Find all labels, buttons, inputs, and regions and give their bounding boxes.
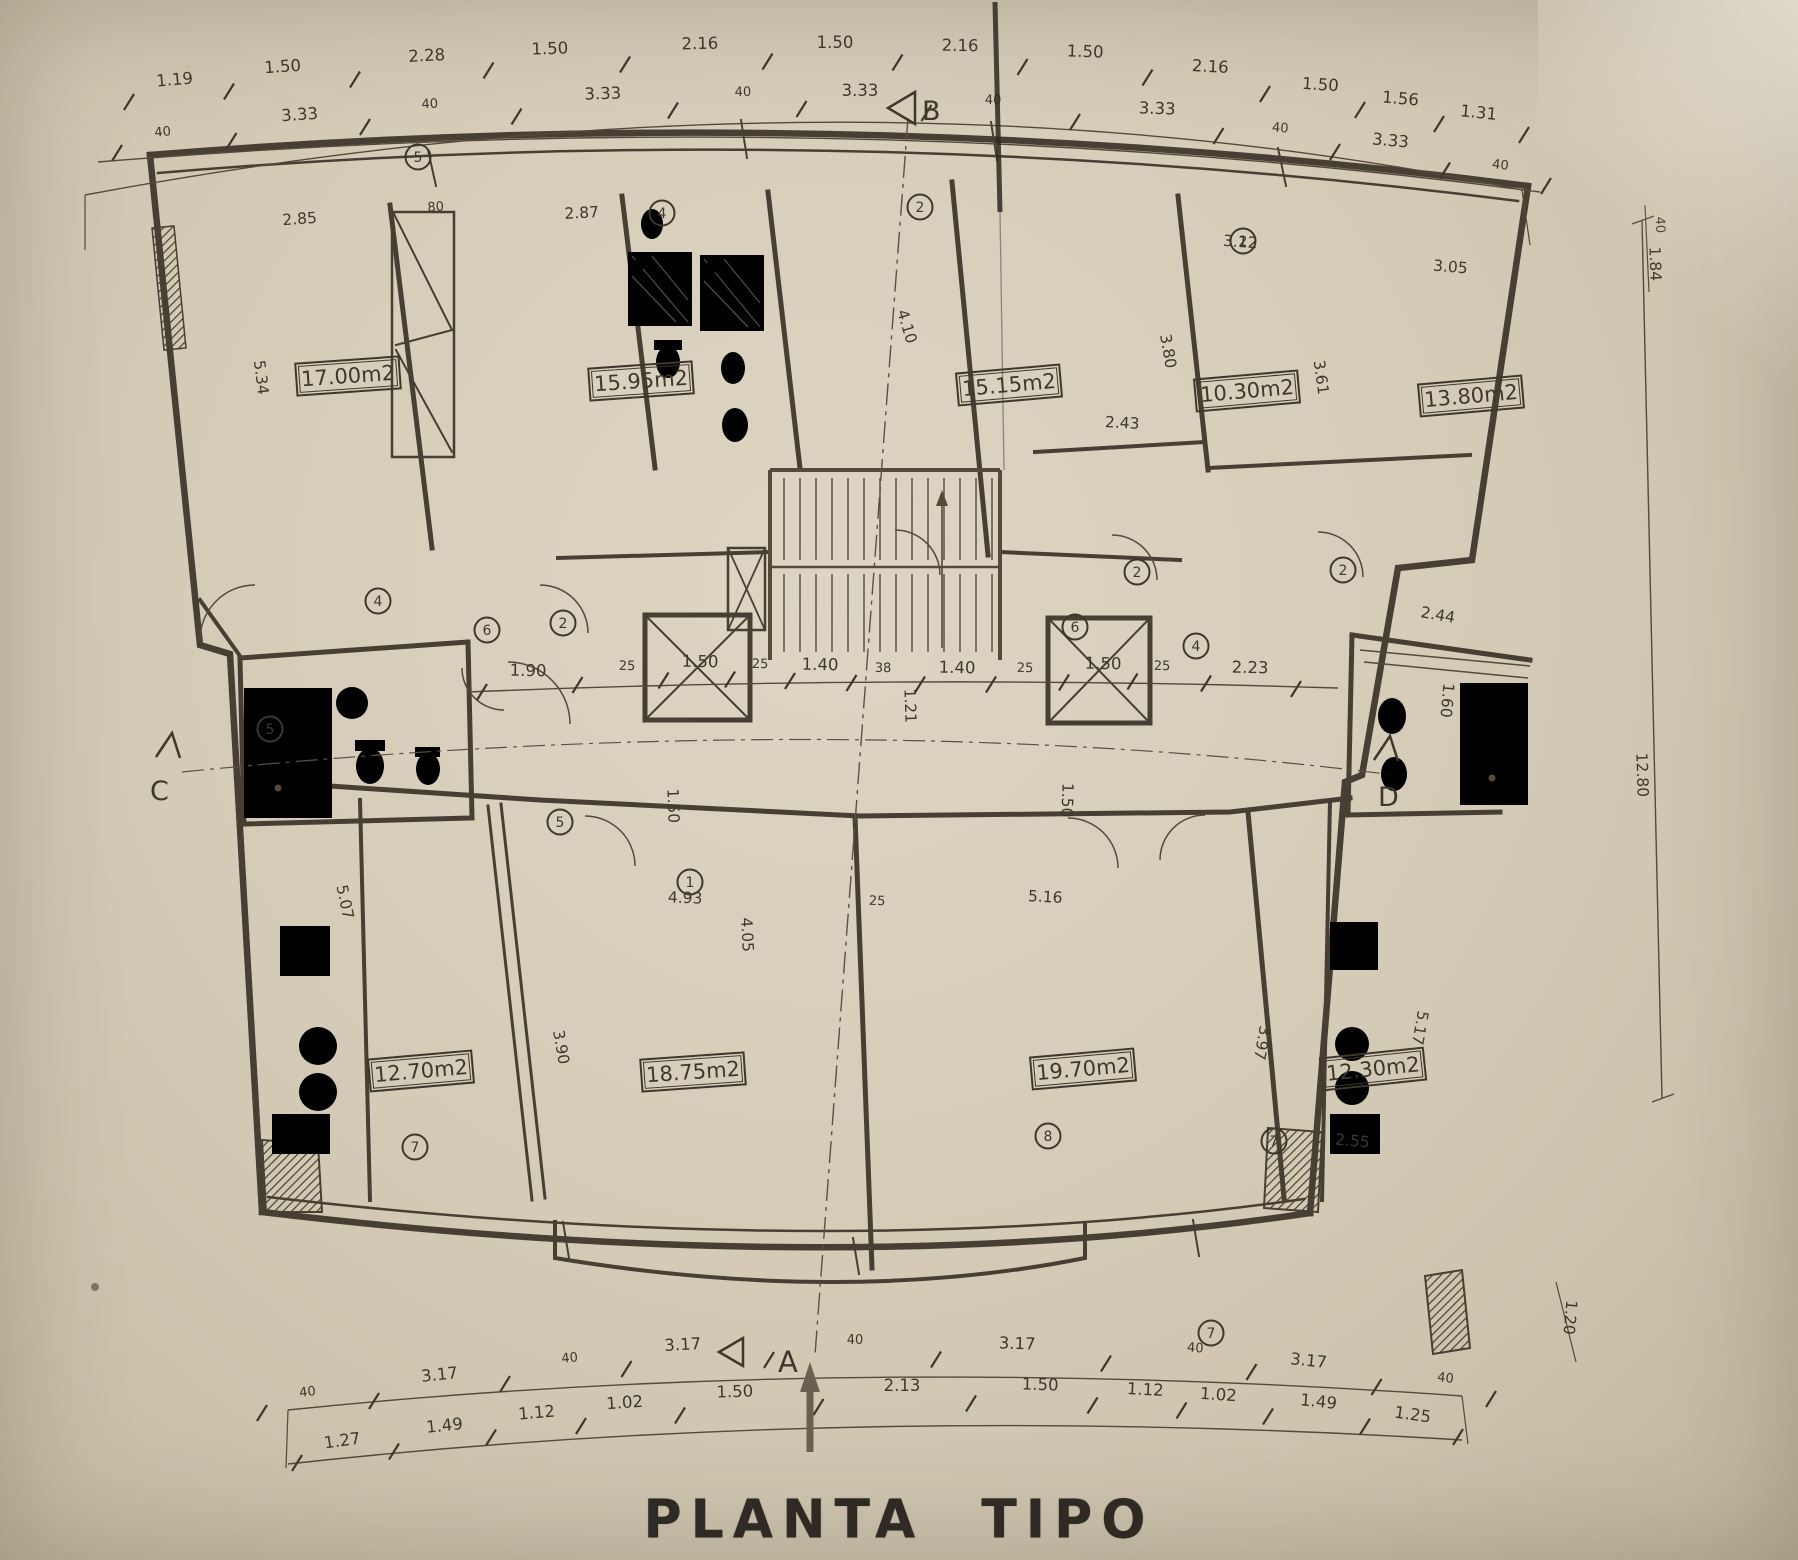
dimension-label: 1.40 — [939, 658, 976, 678]
svg-text:4: 4 — [374, 594, 383, 610]
dimension-label: 2.16 — [942, 36, 979, 56]
dimension-label: 2.44 — [1419, 603, 1456, 627]
room-area-label: 17.00m2 — [295, 356, 400, 395]
dimension-label: 40 — [154, 124, 172, 140]
dimension-label: 25 — [619, 659, 636, 674]
svg-text:8: 8 — [1044, 1129, 1053, 1145]
dimension-label: 1.02 — [606, 1392, 644, 1414]
dimension-label: 2.16 — [681, 34, 718, 54]
svg-text:2: 2 — [916, 200, 925, 216]
room-number-tag: 2 — [908, 195, 933, 220]
section-marker-b: B — [922, 96, 941, 127]
dimension-label: 1.40 — [802, 655, 839, 675]
svg-text:5: 5 — [266, 722, 275, 738]
svg-text:10.30m2: 10.30m2 — [1199, 375, 1295, 407]
svg-text:5: 5 — [414, 150, 423, 166]
dimension-label: 1.12 — [1126, 1379, 1164, 1400]
dimension-label: 40 — [421, 97, 438, 113]
svg-text:7: 7 — [1270, 1134, 1279, 1150]
dimension-label: 5.16 — [1028, 887, 1063, 907]
dimension-label: 1.27 — [323, 1429, 362, 1453]
dimension-label: 1.50 — [1301, 74, 1339, 96]
dimension-label: 2.43 — [1105, 413, 1140, 433]
dimension-label: 3.33 — [842, 81, 879, 100]
fixtures — [200, 209, 1530, 1154]
dimension-label: 1.50 — [531, 38, 568, 58]
dimension-label: 1.12 — [517, 1401, 555, 1423]
room-area-labels: 17.00m215.95m215.15m210.30m213.80m212.70… — [295, 356, 1524, 1091]
dimension-label: 1.49 — [1299, 1390, 1338, 1413]
svg-text:2: 2 — [1133, 565, 1142, 581]
dimension-label: 1.21 — [900, 688, 919, 723]
svg-text:6: 6 — [1071, 620, 1080, 636]
dimension-label: 1.31 — [1459, 101, 1498, 124]
room-number-tag: 2 — [1125, 560, 1150, 585]
dimension-label: 3.33 — [584, 83, 621, 103]
room-number-tag: 8 — [1036, 1124, 1061, 1149]
svg-text:19.70m2: 19.70m2 — [1035, 1053, 1131, 1085]
dimension-label: 12.80 — [1632, 752, 1652, 797]
room-number-tag: 2 — [1331, 558, 1356, 583]
dimension-label: 25 — [1017, 661, 1034, 676]
dimension-label: 40 — [847, 1333, 864, 1348]
dimension-label: 1.50 — [663, 788, 682, 823]
room-number-tag: 4 — [366, 589, 391, 614]
dimension-label: 1.90 — [510, 661, 547, 681]
dimension-label: 2.85 — [282, 209, 318, 229]
dimension-label: 3.80 — [1156, 333, 1180, 370]
dimension-label: 3.17 — [664, 1334, 702, 1355]
svg-text:4: 4 — [658, 206, 667, 222]
room-number-tag: 6 — [475, 618, 500, 643]
dimension-label: 1.56 — [1381, 87, 1419, 109]
dimension-label: 5.34 — [250, 359, 272, 395]
scanned-paper: 1.191.502.281.502.161.502.161.502.161.50… — [0, 0, 1798, 1560]
dimension-labels: 1.191.502.281.502.161.502.161.502.161.50… — [112, 33, 1667, 1471]
room-area-label: 13.80m2 — [1418, 376, 1524, 417]
svg-text:4: 4 — [1192, 639, 1201, 655]
room-number-tag: 7 — [1199, 1321, 1224, 1346]
dimension-label: 1.50 — [264, 56, 302, 78]
dimension-label: 2.16 — [1191, 56, 1229, 77]
svg-text:5: 5 — [556, 815, 565, 831]
dimension-label: 3.33 — [281, 104, 319, 126]
dimension-label: 3.17 — [420, 1363, 459, 1386]
room-area-label: 12.70m2 — [368, 1051, 474, 1092]
svg-text:6: 6 — [483, 623, 492, 639]
svg-text:12.70m2: 12.70m2 — [373, 1055, 469, 1087]
dimension-label: 1.50 — [1057, 783, 1076, 818]
dimension-label: 1.20 — [1560, 1299, 1581, 1335]
dimension-label: 40 — [1491, 157, 1509, 174]
dimension-label: 1.50 — [716, 1381, 753, 1401]
dimension-label: 25 — [869, 894, 886, 910]
dimension-label: 40 — [1652, 216, 1668, 233]
section-marker-d: D — [1378, 782, 1399, 813]
dimension-label: 3.05 — [1432, 257, 1468, 278]
dimension-label: 40 — [1436, 1370, 1454, 1387]
svg-text:15.15m2: 15.15m2 — [961, 369, 1057, 401]
dimension-label: 1.49 — [425, 1414, 464, 1437]
dimension-label: 1.50 — [817, 33, 854, 52]
dimension-label: 1.50 — [1085, 654, 1122, 674]
room-number-tag: 4 — [1184, 634, 1209, 659]
dimension-label: 40 — [735, 85, 752, 100]
dimension-label: 3.17 — [998, 1333, 1035, 1353]
svg-text:7: 7 — [1207, 1326, 1216, 1342]
dimension-label: 1.02 — [1199, 1384, 1237, 1406]
dimension-label: 2.28 — [408, 45, 446, 66]
dimension-label: 1.84 — [1645, 246, 1664, 281]
room-area-label: 18.75m2 — [640, 1052, 745, 1091]
svg-text:1: 1 — [686, 875, 695, 891]
dimension-label: 1.60 — [1437, 682, 1458, 718]
dimension-label: 2.87 — [564, 203, 599, 223]
floor-plan-drawing: 1.191.502.281.502.161.502.161.502.161.50… — [0, 0, 1798, 1560]
svg-text:2: 2 — [1239, 234, 1248, 250]
dimension-label: 5.07 — [332, 883, 357, 921]
staircase — [770, 470, 1000, 660]
dimension-label: 5.17 — [1408, 1009, 1432, 1046]
room-number-tag: 7 — [403, 1135, 428, 1160]
dimension-label: 1.25 — [1393, 1403, 1432, 1427]
dimension-label: 3.61 — [1310, 359, 1333, 396]
dimension-label: 3.90 — [549, 1029, 573, 1066]
dimension-label: 2.13 — [884, 1376, 921, 1395]
dimension-label: 4.10 — [893, 307, 920, 345]
svg-text:2: 2 — [559, 616, 568, 632]
room-area-label: 12.30m2 — [1320, 1048, 1426, 1091]
room-number-tag: 1 — [678, 870, 703, 895]
dimension-label: 3.33 — [1371, 129, 1409, 151]
section-lines — [182, 118, 1386, 1355]
section-marker-a: A — [778, 1345, 798, 1379]
dimension-label: 3.33 — [1138, 98, 1175, 118]
dimension-label: 40 — [1186, 1340, 1204, 1356]
dimension-label: 40 — [1271, 120, 1289, 136]
dimension-label: 2.55 — [1334, 1131, 1370, 1152]
dimension-label: 1.19 — [155, 68, 193, 90]
room-area-label: 10.30m2 — [1194, 371, 1300, 412]
dimension-label: 4.05 — [737, 917, 757, 952]
room-number-tag: 2 — [551, 611, 576, 636]
dimension-label: 80 — [427, 199, 445, 215]
section-marker-c: C — [150, 776, 169, 807]
room-number-tag: 5 — [548, 810, 573, 835]
dimension-label: 25 — [1154, 659, 1171, 674]
dimension-label: 40 — [561, 1350, 579, 1366]
dimension-label: 2.23 — [1232, 658, 1269, 678]
dimension-label: 40 — [298, 1384, 316, 1401]
svg-text:7: 7 — [411, 1140, 420, 1156]
dimension-label: 25 — [752, 657, 769, 672]
dimension-label: 3.17 — [1289, 1349, 1328, 1372]
svg-text:2: 2 — [1339, 563, 1348, 579]
svg-text:13.80m2: 13.80m2 — [1423, 380, 1519, 412]
room-area-label: 19.70m2 — [1030, 1049, 1136, 1090]
dimension-label: 1.50 — [682, 652, 719, 672]
dimension-label: 38 — [875, 661, 892, 676]
dimension-label: 1.50 — [1066, 41, 1103, 61]
dimension-label: 1.50 — [1021, 1374, 1058, 1394]
